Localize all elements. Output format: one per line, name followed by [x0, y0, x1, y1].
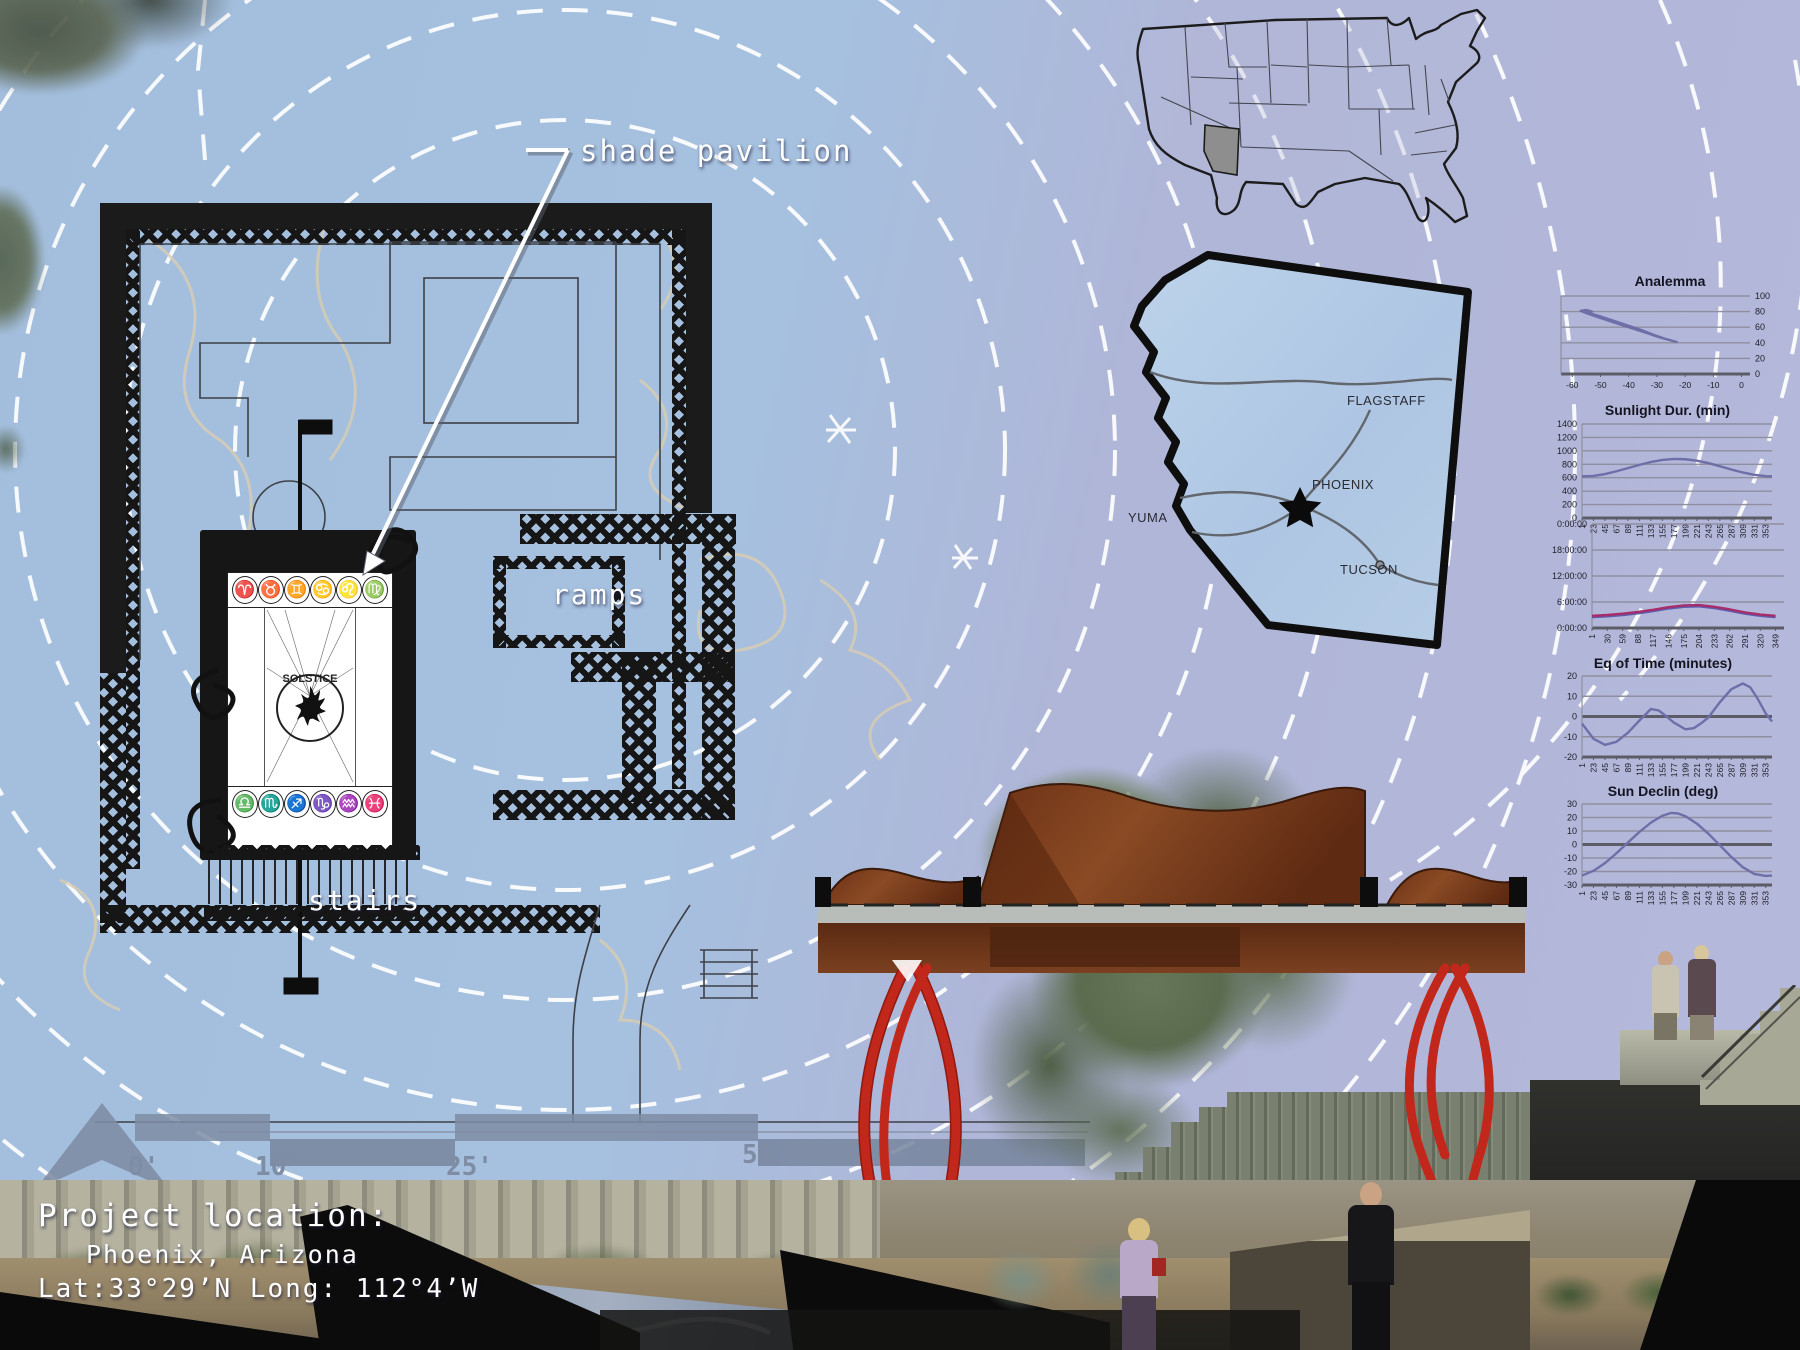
- svg-text:133: 133: [1646, 891, 1656, 905]
- svg-text:265: 265: [1715, 891, 1725, 905]
- svg-text:146: 146: [1663, 634, 1673, 648]
- svg-text:233: 233: [1709, 634, 1719, 648]
- arizona-map: [1050, 225, 1500, 655]
- chart-title-eq-of-time: Eq of Time (minutes): [1548, 655, 1778, 671]
- svg-text:-10: -10: [1564, 853, 1577, 863]
- svg-text:23: 23: [1588, 891, 1598, 901]
- center-shadow: [600, 1310, 1300, 1350]
- svg-text:287: 287: [1726, 891, 1736, 905]
- chart-title-analemma: Analemma: [1560, 273, 1780, 289]
- svg-text:133: 133: [1646, 763, 1656, 777]
- svg-text:331: 331: [1749, 763, 1759, 777]
- svg-text:331: 331: [1749, 891, 1759, 905]
- svg-text:30: 30: [1567, 800, 1577, 809]
- svg-text:353: 353: [1761, 763, 1771, 777]
- person-man-standing: [1340, 1182, 1402, 1350]
- person-woman-reading: [1112, 1218, 1168, 1350]
- svg-text:349: 349: [1771, 634, 1781, 648]
- svg-text:1: 1: [1577, 763, 1587, 768]
- person-couple-on-platform: [1648, 945, 1728, 1040]
- svg-text:-10: -10: [1564, 732, 1577, 742]
- svg-text:89: 89: [1623, 763, 1633, 773]
- svg-text:18:00:00: 18:00:00: [1552, 545, 1587, 555]
- svg-text:800: 800: [1562, 459, 1577, 469]
- svg-text:291: 291: [1740, 634, 1750, 648]
- svg-text:0: 0: [1755, 369, 1760, 379]
- chart-analemma: 100806040200-60-50-40-30-20-100: [1555, 292, 1780, 392]
- svg-text:600: 600: [1562, 473, 1577, 483]
- svg-text:0: 0: [1739, 380, 1744, 390]
- project-location-line2: Phoenix, Arizona: [86, 1240, 678, 1269]
- svg-text:-20: -20: [1564, 867, 1577, 877]
- svg-text:1000: 1000: [1557, 446, 1577, 456]
- chart-sunrise-sunset: 0:00:0018:00:0012:00:006:00:000:00:00130…: [1540, 520, 1790, 658]
- svg-text:-10: -10: [1707, 380, 1720, 390]
- svg-text:0:00:00: 0:00:00: [1557, 520, 1587, 529]
- project-location-line1: Project location:: [38, 1198, 678, 1234]
- svg-text:30: 30: [1602, 634, 1612, 644]
- svg-text:0: 0: [1572, 712, 1577, 722]
- svg-text:12:00:00: 12:00:00: [1552, 571, 1587, 581]
- svg-text:-20: -20: [1679, 380, 1692, 390]
- svg-text:1200: 1200: [1557, 432, 1577, 442]
- svg-text:204: 204: [1694, 634, 1704, 648]
- svg-text:59: 59: [1618, 634, 1628, 644]
- svg-text:309: 309: [1738, 763, 1748, 777]
- presentation-board: ♈ ♉ ♊ ♋ ♌ ♍ SOLSTICE: [0, 0, 1800, 1350]
- chart-title-sun-declin: Sun Declin (deg): [1548, 783, 1778, 799]
- svg-text:0: 0: [1572, 840, 1577, 850]
- svg-text:23: 23: [1588, 763, 1598, 773]
- svg-text:6:00:00: 6:00:00: [1557, 597, 1587, 607]
- svg-text:88: 88: [1633, 634, 1643, 644]
- svg-text:67: 67: [1611, 891, 1621, 901]
- svg-text:155: 155: [1657, 891, 1667, 905]
- svg-text:320: 320: [1755, 634, 1765, 648]
- label-shade-pavilion: shade pavilion: [580, 134, 852, 168]
- svg-text:-20: -20: [1564, 752, 1577, 762]
- city-tucson: TUCSON: [1340, 562, 1398, 577]
- svg-text:221: 221: [1692, 891, 1702, 905]
- svg-text:20: 20: [1567, 813, 1577, 823]
- svg-text:1: 1: [1587, 634, 1597, 639]
- city-flagstaff: FLAGSTAFF: [1347, 393, 1426, 408]
- svg-text:0:00:00: 0:00:00: [1557, 623, 1587, 633]
- svg-text:177: 177: [1669, 891, 1679, 905]
- svg-text:221: 221: [1692, 763, 1702, 777]
- svg-text:100: 100: [1755, 292, 1770, 301]
- svg-text:111: 111: [1634, 891, 1644, 904]
- svg-text:309: 309: [1738, 891, 1748, 905]
- svg-text:1: 1: [1577, 891, 1587, 896]
- chart-title-sunlight: Sunlight Dur. (min): [1555, 402, 1780, 418]
- svg-text:243: 243: [1703, 891, 1713, 905]
- svg-text:353: 353: [1761, 891, 1771, 905]
- svg-text:45: 45: [1600, 763, 1610, 773]
- svg-text:287: 287: [1726, 763, 1736, 777]
- svg-text:10: 10: [1567, 826, 1577, 836]
- city-phoenix: PHOENIX: [1312, 477, 1374, 492]
- label-ramps: ramps: [552, 578, 646, 611]
- svg-text:-60: -60: [1566, 380, 1579, 390]
- svg-text:111: 111: [1634, 763, 1644, 776]
- svg-text:177: 177: [1669, 763, 1679, 777]
- svg-text:67: 67: [1611, 763, 1621, 773]
- svg-text:117: 117: [1648, 634, 1658, 648]
- svg-text:10: 10: [1567, 691, 1577, 701]
- svg-text:-30: -30: [1651, 380, 1664, 390]
- chart-sun-declination: 3020100-10-20-30123456789111133155177199…: [1548, 800, 1778, 915]
- label-stairs: stairs: [308, 884, 421, 917]
- svg-text:243: 243: [1703, 763, 1713, 777]
- svg-text:20: 20: [1567, 672, 1577, 681]
- svg-text:265: 265: [1715, 763, 1725, 777]
- svg-text:1400: 1400: [1557, 420, 1577, 429]
- project-location-line3: Lat:33°29’N Long: 112°4’W: [38, 1274, 678, 1304]
- project-title-block: Project location: Phoenix, Arizona Lat:3…: [38, 1198, 678, 1304]
- chart-eq-of-time: 20100-10-2012345678911113315517719922124…: [1548, 672, 1778, 787]
- svg-text:175: 175: [1679, 634, 1689, 648]
- svg-text:45: 45: [1600, 891, 1610, 901]
- svg-text:20: 20: [1755, 353, 1765, 363]
- svg-text:-30: -30: [1564, 880, 1577, 890]
- svg-text:-40: -40: [1623, 380, 1636, 390]
- svg-text:400: 400: [1562, 486, 1577, 496]
- svg-text:89: 89: [1623, 891, 1633, 901]
- svg-text:200: 200: [1562, 500, 1577, 510]
- city-yuma: YUMA: [1128, 510, 1168, 525]
- us-map: [1125, 5, 1525, 240]
- shade-pavilion-canopy: [815, 765, 1530, 980]
- svg-text:-50: -50: [1594, 380, 1607, 390]
- svg-text:199: 199: [1680, 891, 1690, 905]
- svg-text:155: 155: [1657, 763, 1667, 777]
- svg-text:40: 40: [1755, 338, 1765, 348]
- svg-text:60: 60: [1755, 322, 1765, 332]
- svg-text:199: 199: [1680, 763, 1690, 777]
- svg-text:262: 262: [1725, 634, 1735, 648]
- svg-text:80: 80: [1755, 307, 1765, 317]
